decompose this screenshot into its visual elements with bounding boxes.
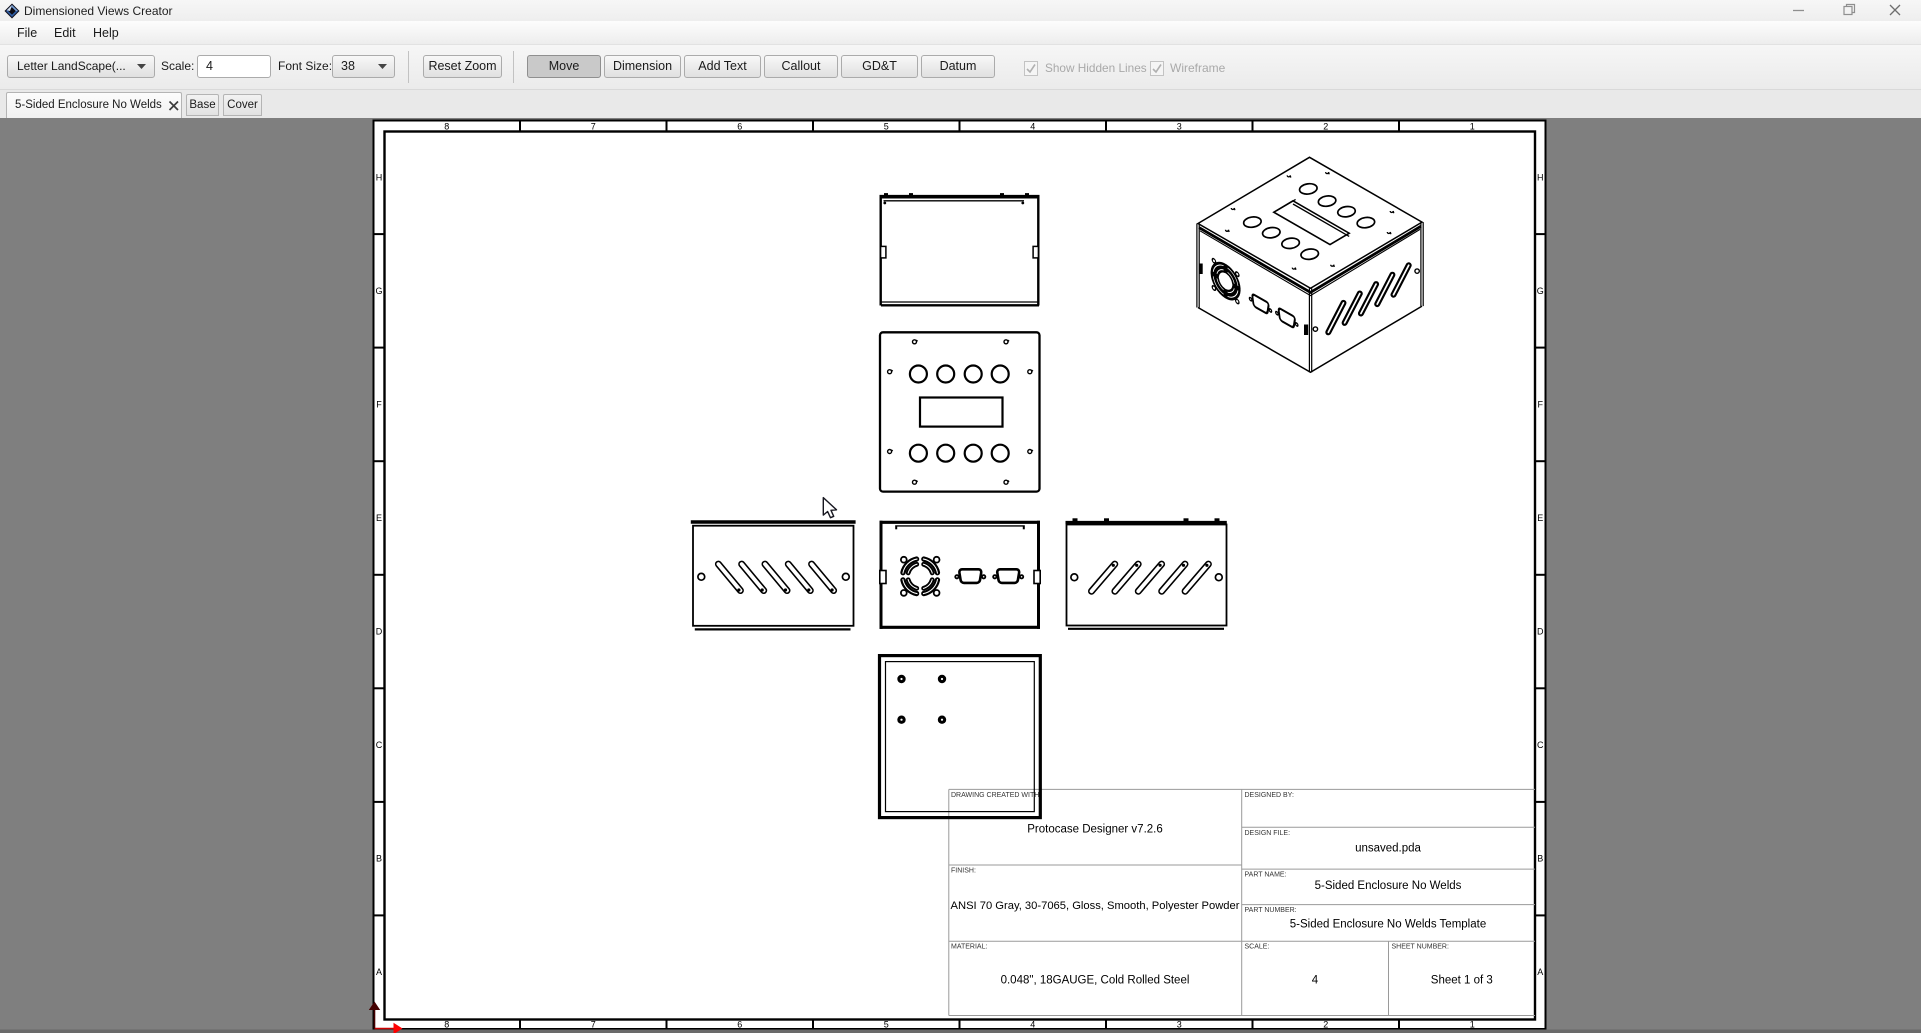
svg-text:FINISH:: FINISH: bbox=[951, 868, 976, 875]
svg-text:C: C bbox=[376, 740, 383, 750]
svg-text:C: C bbox=[1537, 740, 1544, 750]
svg-text:SHEET NUMBER:: SHEET NUMBER: bbox=[1392, 944, 1449, 951]
svg-text:A: A bbox=[1537, 967, 1543, 977]
svg-text:8: 8 bbox=[444, 122, 449, 132]
svg-text:4: 4 bbox=[1030, 122, 1035, 132]
svg-text:5: 5 bbox=[884, 122, 889, 132]
svg-text:3: 3 bbox=[1177, 122, 1182, 132]
svg-text:8: 8 bbox=[444, 1020, 449, 1030]
svg-text:5-Sided Enclosure No Welds Tem: 5-Sided Enclosure No Welds Template bbox=[1290, 918, 1486, 930]
svg-text:G: G bbox=[1537, 286, 1544, 296]
svg-text:1: 1 bbox=[1470, 122, 1475, 132]
svg-text:B: B bbox=[376, 854, 382, 864]
svg-text:Sheet 1 of 3: Sheet 1 of 3 bbox=[1431, 975, 1493, 987]
svg-text:1: 1 bbox=[1470, 1020, 1475, 1030]
svg-text:E: E bbox=[1537, 513, 1543, 523]
svg-text:DESIGNED BY:: DESIGNED BY: bbox=[1245, 792, 1294, 799]
svg-text:7: 7 bbox=[591, 1020, 596, 1030]
svg-text:D: D bbox=[1537, 627, 1544, 637]
svg-text:2: 2 bbox=[1323, 1020, 1328, 1030]
svg-text:D: D bbox=[376, 627, 383, 637]
svg-text:MATERIAL:: MATERIAL: bbox=[951, 944, 987, 951]
svg-text:6: 6 bbox=[737, 1020, 742, 1030]
svg-text:7: 7 bbox=[591, 122, 596, 132]
svg-text:PART NAME:: PART NAME: bbox=[1245, 872, 1287, 879]
svg-text:E: E bbox=[376, 513, 382, 523]
svg-text:H: H bbox=[376, 172, 383, 182]
svg-text:SCALE:: SCALE: bbox=[1245, 944, 1270, 951]
svg-text:Protocase Designer v7.2.6: Protocase Designer v7.2.6 bbox=[1027, 824, 1163, 836]
svg-text:4: 4 bbox=[1312, 975, 1319, 987]
svg-text:DRAWING CREATED WITH:: DRAWING CREATED WITH: bbox=[951, 792, 1041, 799]
svg-text:2: 2 bbox=[1323, 122, 1328, 132]
svg-text:H: H bbox=[1537, 172, 1544, 182]
svg-text:unsaved.pda: unsaved.pda bbox=[1355, 843, 1421, 855]
svg-text:F: F bbox=[1538, 399, 1544, 409]
svg-text:6: 6 bbox=[737, 122, 742, 132]
svg-text:PART NUMBER:: PART NUMBER: bbox=[1245, 907, 1297, 914]
svg-text:ANSI 70 Gray, 30-7065, Gloss,: ANSI 70 Gray, 30-7065, Gloss, Smooth, Po… bbox=[951, 900, 1240, 912]
svg-text:G: G bbox=[375, 286, 382, 296]
svg-text:5: 5 bbox=[884, 1020, 889, 1030]
svg-text:0.048", 18GAUGE, Cold Rolled S: 0.048", 18GAUGE, Cold Rolled Steel bbox=[1001, 975, 1190, 987]
svg-text:A: A bbox=[376, 967, 382, 977]
svg-text:F: F bbox=[376, 399, 382, 409]
svg-text:B: B bbox=[1537, 854, 1543, 864]
svg-text:5-Sided Enclosure No Welds: 5-Sided Enclosure No Welds bbox=[1315, 880, 1462, 892]
svg-text:4: 4 bbox=[1030, 1020, 1035, 1030]
svg-text:3: 3 bbox=[1177, 1020, 1182, 1030]
svg-text:DESIGN FILE:: DESIGN FILE: bbox=[1245, 830, 1291, 837]
